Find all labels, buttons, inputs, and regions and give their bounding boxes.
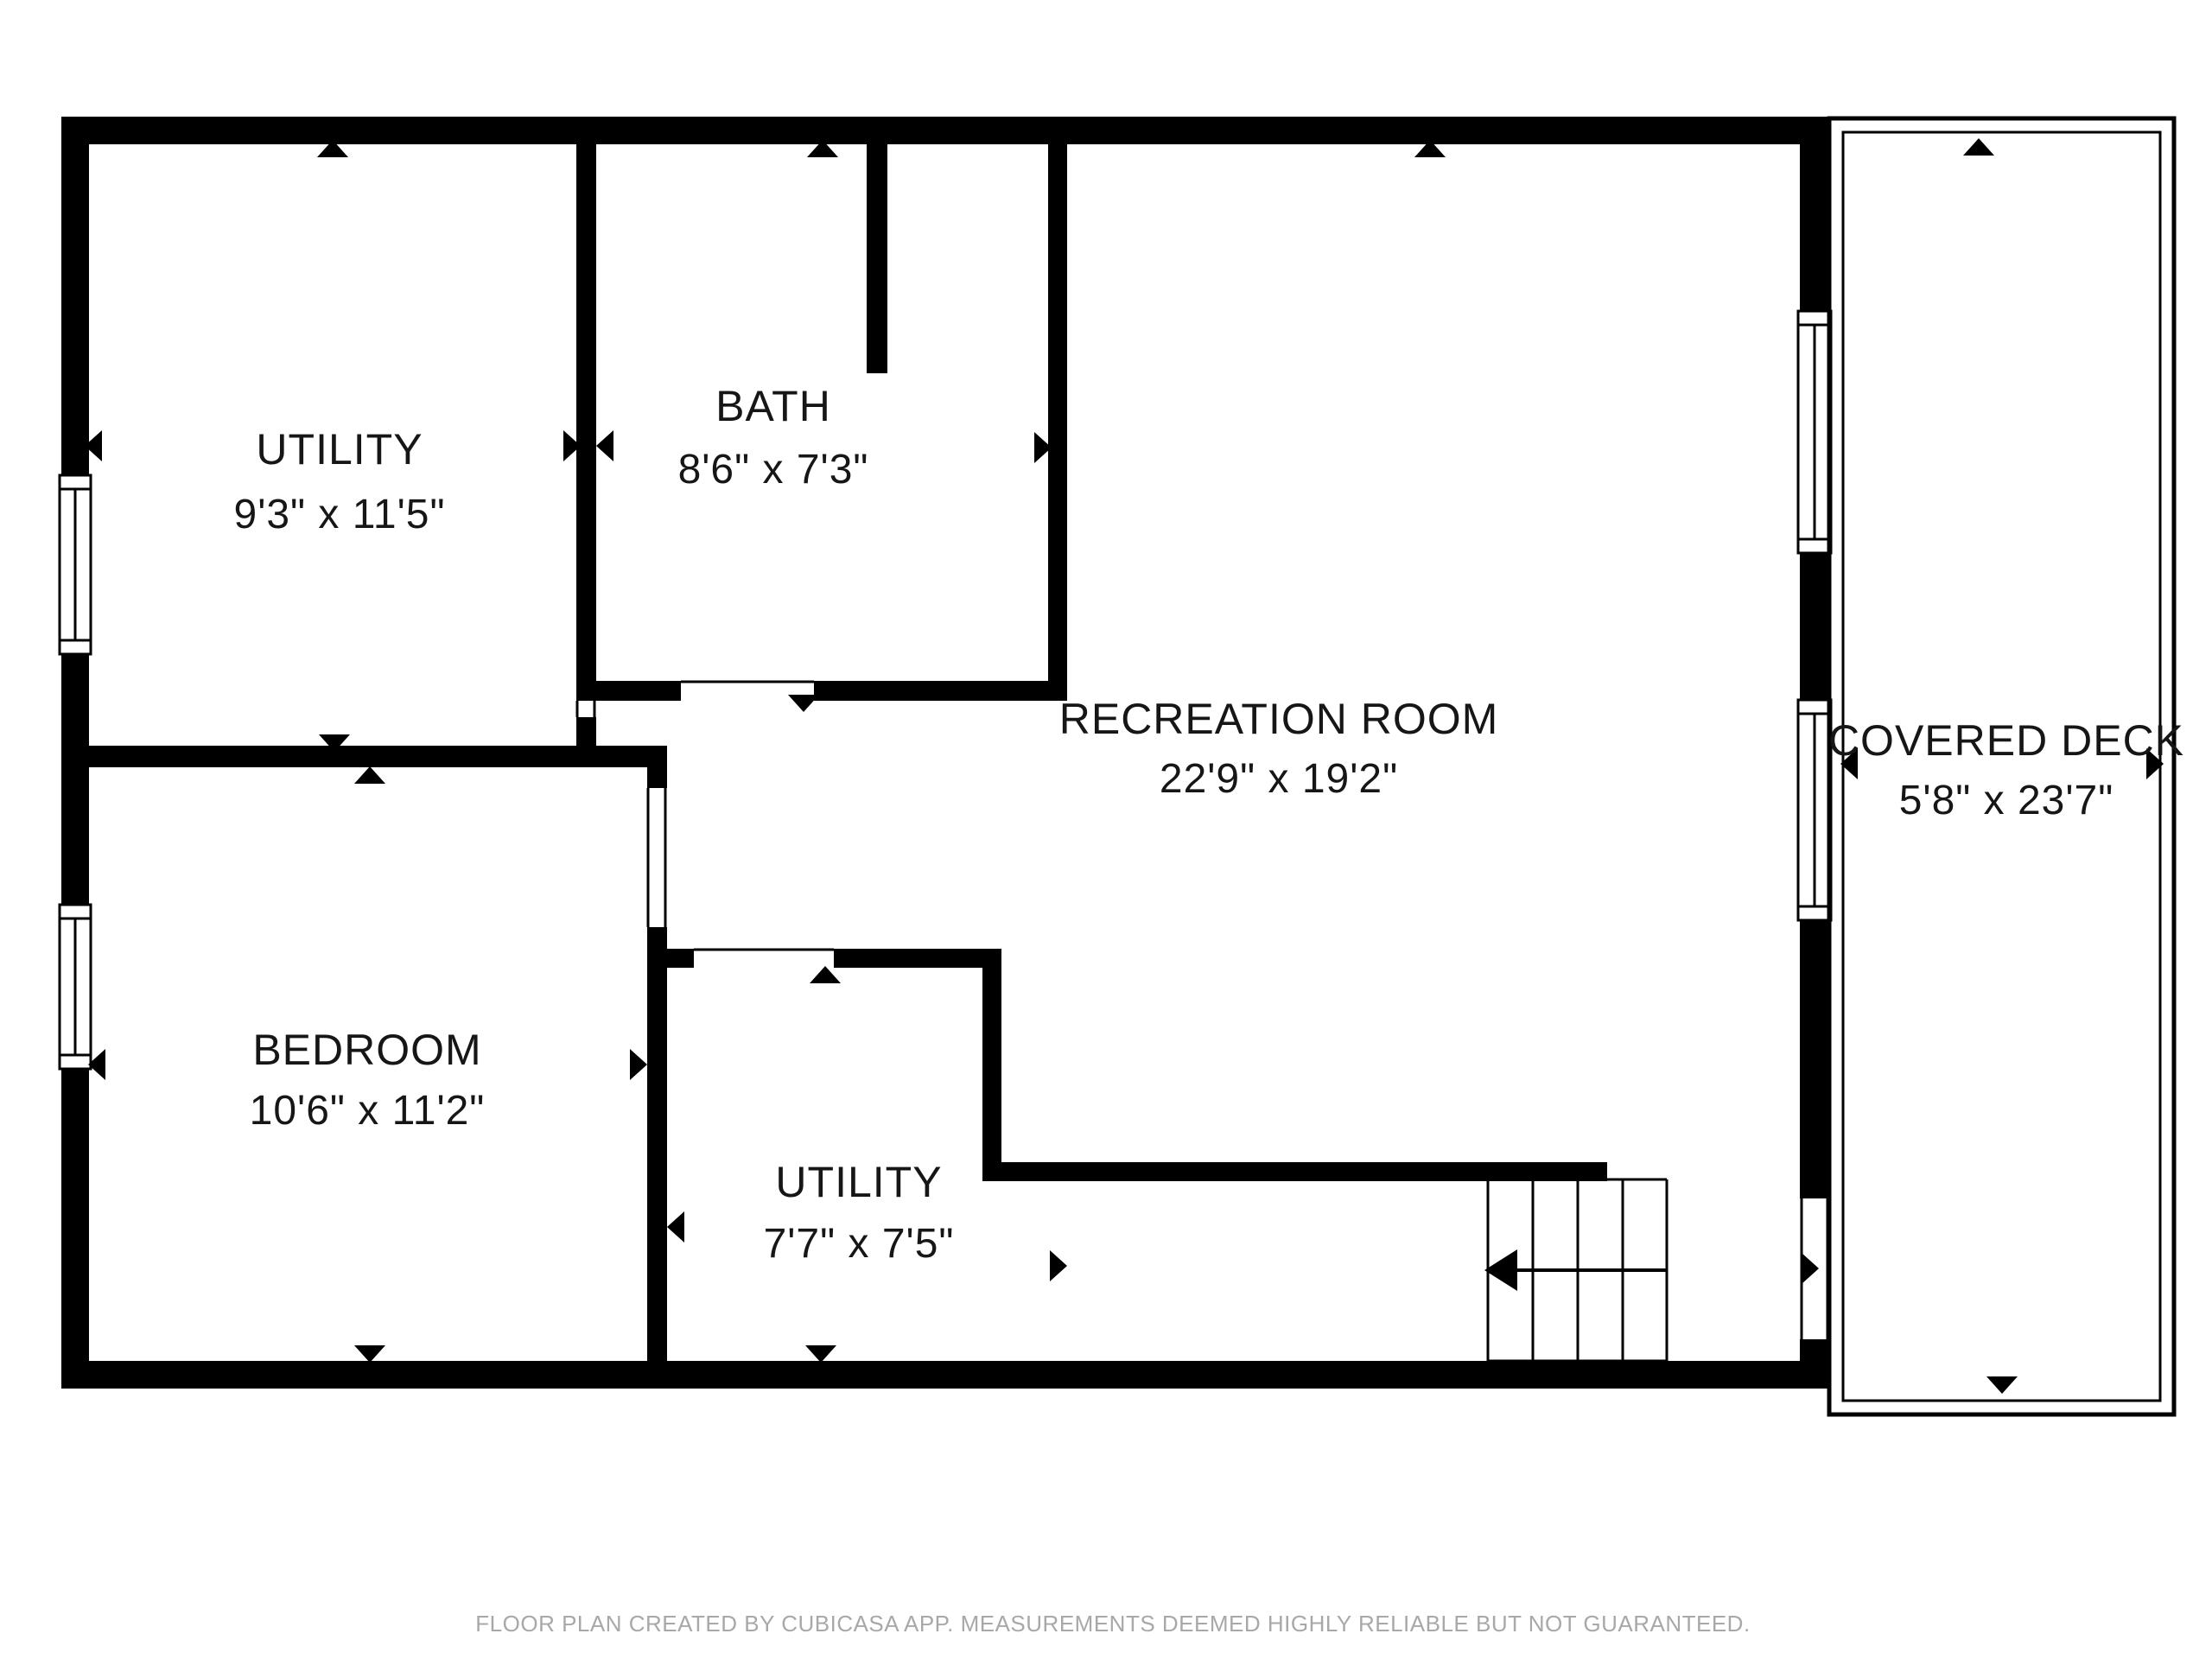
wall-bath-bottom-right [814, 681, 1067, 701]
wall-bedroom-right-lower [647, 927, 667, 1361]
dimension-arrow-left-icon [596, 430, 613, 461]
exterior-wall-left [61, 117, 89, 1389]
room-name: BATH [715, 382, 831, 430]
room-dimensions: 8'6" x 7'3" [678, 447, 869, 493]
room-label-bedroom: BEDROOM 10'6" x 11'2" [250, 1026, 486, 1134]
wall-utility-bedroom-divider [89, 746, 667, 767]
room-dimensions: 9'3" x 11'5" [234, 492, 446, 537]
room-label-utility-lower: UTILITY 7'7" x 7'5" [764, 1158, 955, 1267]
room-name: BEDROOM [252, 1026, 481, 1074]
window-recreation-right-lower [1798, 700, 1831, 920]
dimension-arrow-down-icon [805, 1345, 836, 1363]
wall-bedroom-right-upper [647, 746, 667, 788]
room-dimensions: 5'8" x 23'7" [1899, 778, 2114, 823]
room-name: UTILITY [256, 425, 423, 474]
dimension-arrow-left-icon [667, 1211, 684, 1243]
window-bedroom-left [60, 905, 91, 1069]
exterior-wall-bottom [61, 1361, 1829, 1389]
room-dimensions: 22'9" x 19'2" [1160, 756, 1398, 802]
stairs-direction-arrow-icon [1484, 1249, 1517, 1291]
room-label-bath: BATH 8'6" x 7'3" [678, 382, 869, 493]
wall-bath-right [1048, 144, 1067, 701]
window-utility-left [60, 475, 91, 654]
deck-outer-border [1829, 118, 2174, 1414]
window-recreation-right-upper [1798, 311, 1831, 553]
dimension-arrow-up-icon [354, 766, 385, 784]
room-name: RECREATION ROOM [1059, 695, 1499, 743]
room-label-recreation: RECREATION ROOM 22'9" x 19'2" [1059, 695, 1499, 802]
exterior-wall-top [61, 117, 1829, 144]
room-dimensions: 7'7" x 7'5" [764, 1221, 955, 1267]
wall-utility-lower-top-stub [667, 949, 694, 968]
deck-inner-border [1843, 132, 2160, 1401]
room-name: UTILITY [775, 1158, 942, 1206]
staircase [1484, 1179, 1667, 1361]
wall-bath-interior-stub [867, 144, 887, 373]
wall-divider-stub [576, 717, 596, 747]
wall-utility-lower-right [982, 968, 1001, 1164]
room-labels: UTILITY 9'3" x 11'5" BATH 8'6" x 7'3" RE… [234, 382, 2185, 1267]
room-name: COVERED DECK [1828, 716, 2184, 765]
dimension-arrow-down-icon [1986, 1376, 2018, 1394]
footer-disclaimer: FLOOR PLAN CREATED BY CUBICASA APP. MEAS… [475, 1611, 1750, 1637]
dimension-arrow-right-icon [630, 1049, 647, 1080]
covered-deck-outline [1829, 118, 2174, 1414]
dimension-arrow-down-icon [788, 695, 819, 712]
wall-bath-bottom-left [576, 681, 681, 701]
dimension-arrow-down-icon [354, 1345, 385, 1363]
dimension-arrow-right-icon [1050, 1250, 1067, 1281]
room-dimensions: 10'6" x 11'2" [250, 1088, 486, 1134]
wall-utility-bath-divider [576, 144, 596, 681]
floor-plan-page: UTILITY 9'3" x 11'5" BATH 8'6" x 7'3" RE… [0, 0, 2212, 1659]
dimension-arrow-up-icon [1963, 138, 1994, 156]
dimension-arrow-up-icon [810, 966, 841, 983]
room-label-covered-deck: COVERED DECK 5'8" x 23'7" [1828, 716, 2184, 823]
wall-utility-lower-top [834, 949, 1001, 968]
room-label-utility-upper: UTILITY 9'3" x 11'5" [234, 425, 446, 537]
floor-plan-canvas: UTILITY 9'3" x 11'5" BATH 8'6" x 7'3" RE… [0, 0, 2212, 1659]
